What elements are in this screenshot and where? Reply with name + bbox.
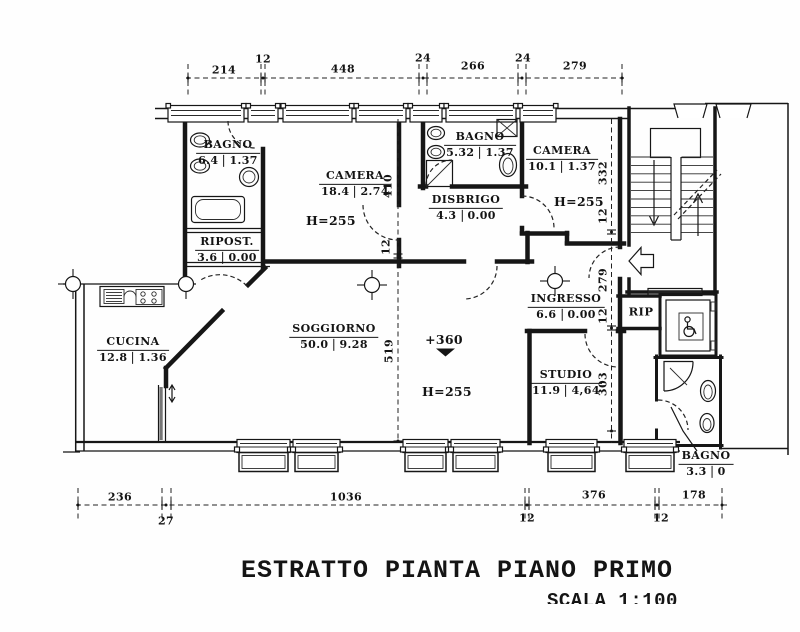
room-name: INGRESSO [528,293,605,308]
room-name: CUCINA [97,336,169,351]
room-area: 10.1 [526,161,561,174]
drawing-title: ESTRATTO PIANTA PIANO PRIMO [241,556,673,585]
height-note-camera-e: H=255 [554,195,604,209]
apartment-entrance-arrow [629,248,654,275]
dim-left-3: 519 [384,339,397,363]
dim-bottom-6: 12 [653,513,669,526]
structural-columns [58,266,570,300]
wheelchair-icon [684,317,696,337]
room-area: 5.32 [444,147,479,160]
dim-top-5: 266 [461,61,485,74]
dim-top-1: 214 [212,65,236,78]
room-label-soggiorno: SOGGIORNO 50.09.28 [289,323,378,351]
room-label-ripost: RIPOST. 3.60.00 [195,236,259,264]
room-value: 1.37 [480,147,516,160]
floor-plan-drawing [0,0,800,632]
building-entry-door [674,104,707,118]
dim-top-6: 24 [515,53,531,66]
room-value: 0.00 [222,252,258,265]
dim-right-1: 332 [598,161,611,185]
room-name: CAMERA [526,145,598,160]
room-value: 1.36 [133,352,169,365]
bottom-windows [235,440,679,472]
dim-top-2: 12 [255,54,271,67]
room-label-camera-w: CAMERA 18.42.74 [319,170,391,198]
room-name: BAGNO [196,139,260,154]
room-name: BAGNO [679,450,734,465]
room-value: 9.28 [333,339,369,352]
stair-up-arrow [694,194,703,236]
floor-plan-page: BAGNO 6.41.37 RIPOST. 3.60.00 CUCINA 12.… [0,0,800,632]
room-area: 6.6 [534,309,561,322]
level-marker-triangle [436,349,455,357]
room-label-ingresso: INGRESSO 6.60.00 [528,293,605,321]
dim-top-3: 448 [331,64,355,77]
height-note-soggiorno: H=255 [422,385,472,399]
dim-bottom-1: 236 [108,492,132,505]
room-area: 3.3 [684,466,711,479]
bathroom-se-fixtures [664,362,716,433]
room-value: 0.00 [461,210,497,223]
room-label-cucina: CUCINA 12.81.36 [97,336,169,364]
dim-bottom-2: 27 [158,516,174,529]
dim-right-2: 12 [598,208,611,224]
elevator [648,289,716,357]
room-label-bagno-center: BAGNO 5.321.37 [444,131,516,159]
room-value: 0 [712,466,728,479]
room-label-bagno-se: BAGNO 3.30 [679,450,734,478]
dim-bottom-7: 178 [682,490,706,503]
kitchen-counter [100,287,164,307]
room-name: SOGGIORNO [289,323,378,338]
dim-left-2: 12 [381,239,394,255]
room-value: 1.37 [562,161,598,174]
room-area: 3.6 [195,252,222,265]
room-name: CAMERA [319,170,391,185]
room-value: 0.00 [561,309,597,322]
dim-top-7: 279 [563,61,587,74]
dim-bottom-3: 1036 [330,492,362,505]
room-area: 50.0 [298,339,333,352]
dim-right-4: 12 [598,308,611,324]
room-area: 11.9 [530,385,565,398]
height-note-camera-w: H=255 [306,214,356,228]
room-label-studio: STUDIO 11.94,64 [530,369,602,397]
room-area: 12.8 [97,352,132,365]
room-name: STUDIO [530,369,602,384]
pocket-door-arrow [169,385,175,402]
room-name: RIPOST. [195,236,259,251]
level-mark-label: +360 [425,333,463,347]
room-label-camera-e: CAMERA 10.11.37 [526,145,598,173]
room-name: BAGNO [444,131,516,146]
room-value: 1.37 [223,155,259,168]
dim-top-4: 24 [415,53,431,66]
dim-right-5: 303 [598,372,611,396]
dim-right-3: 279 [598,268,611,292]
drawing-scale: SCALA 1:100 [547,590,687,604]
room-name: DISBRIGO [429,194,503,209]
dim-bottom-5: 376 [582,490,606,503]
room-area: 6.4 [196,155,223,168]
room-label-rip: RIP [629,305,654,318]
room-label-bagno-nw: BAGNO 6.41.37 [196,139,260,167]
dim-bottom-4: 12 [519,513,535,526]
dim-left-1: 410 [383,174,396,198]
room-label-disbrigo: DISBRIGO 4.30.00 [429,194,503,222]
room-area: 4.3 [434,210,461,223]
staircase [627,104,751,294]
building-entry-door-2 [716,104,751,118]
room-area: 18.4 [319,186,354,199]
stair-down-arrow [650,160,659,225]
